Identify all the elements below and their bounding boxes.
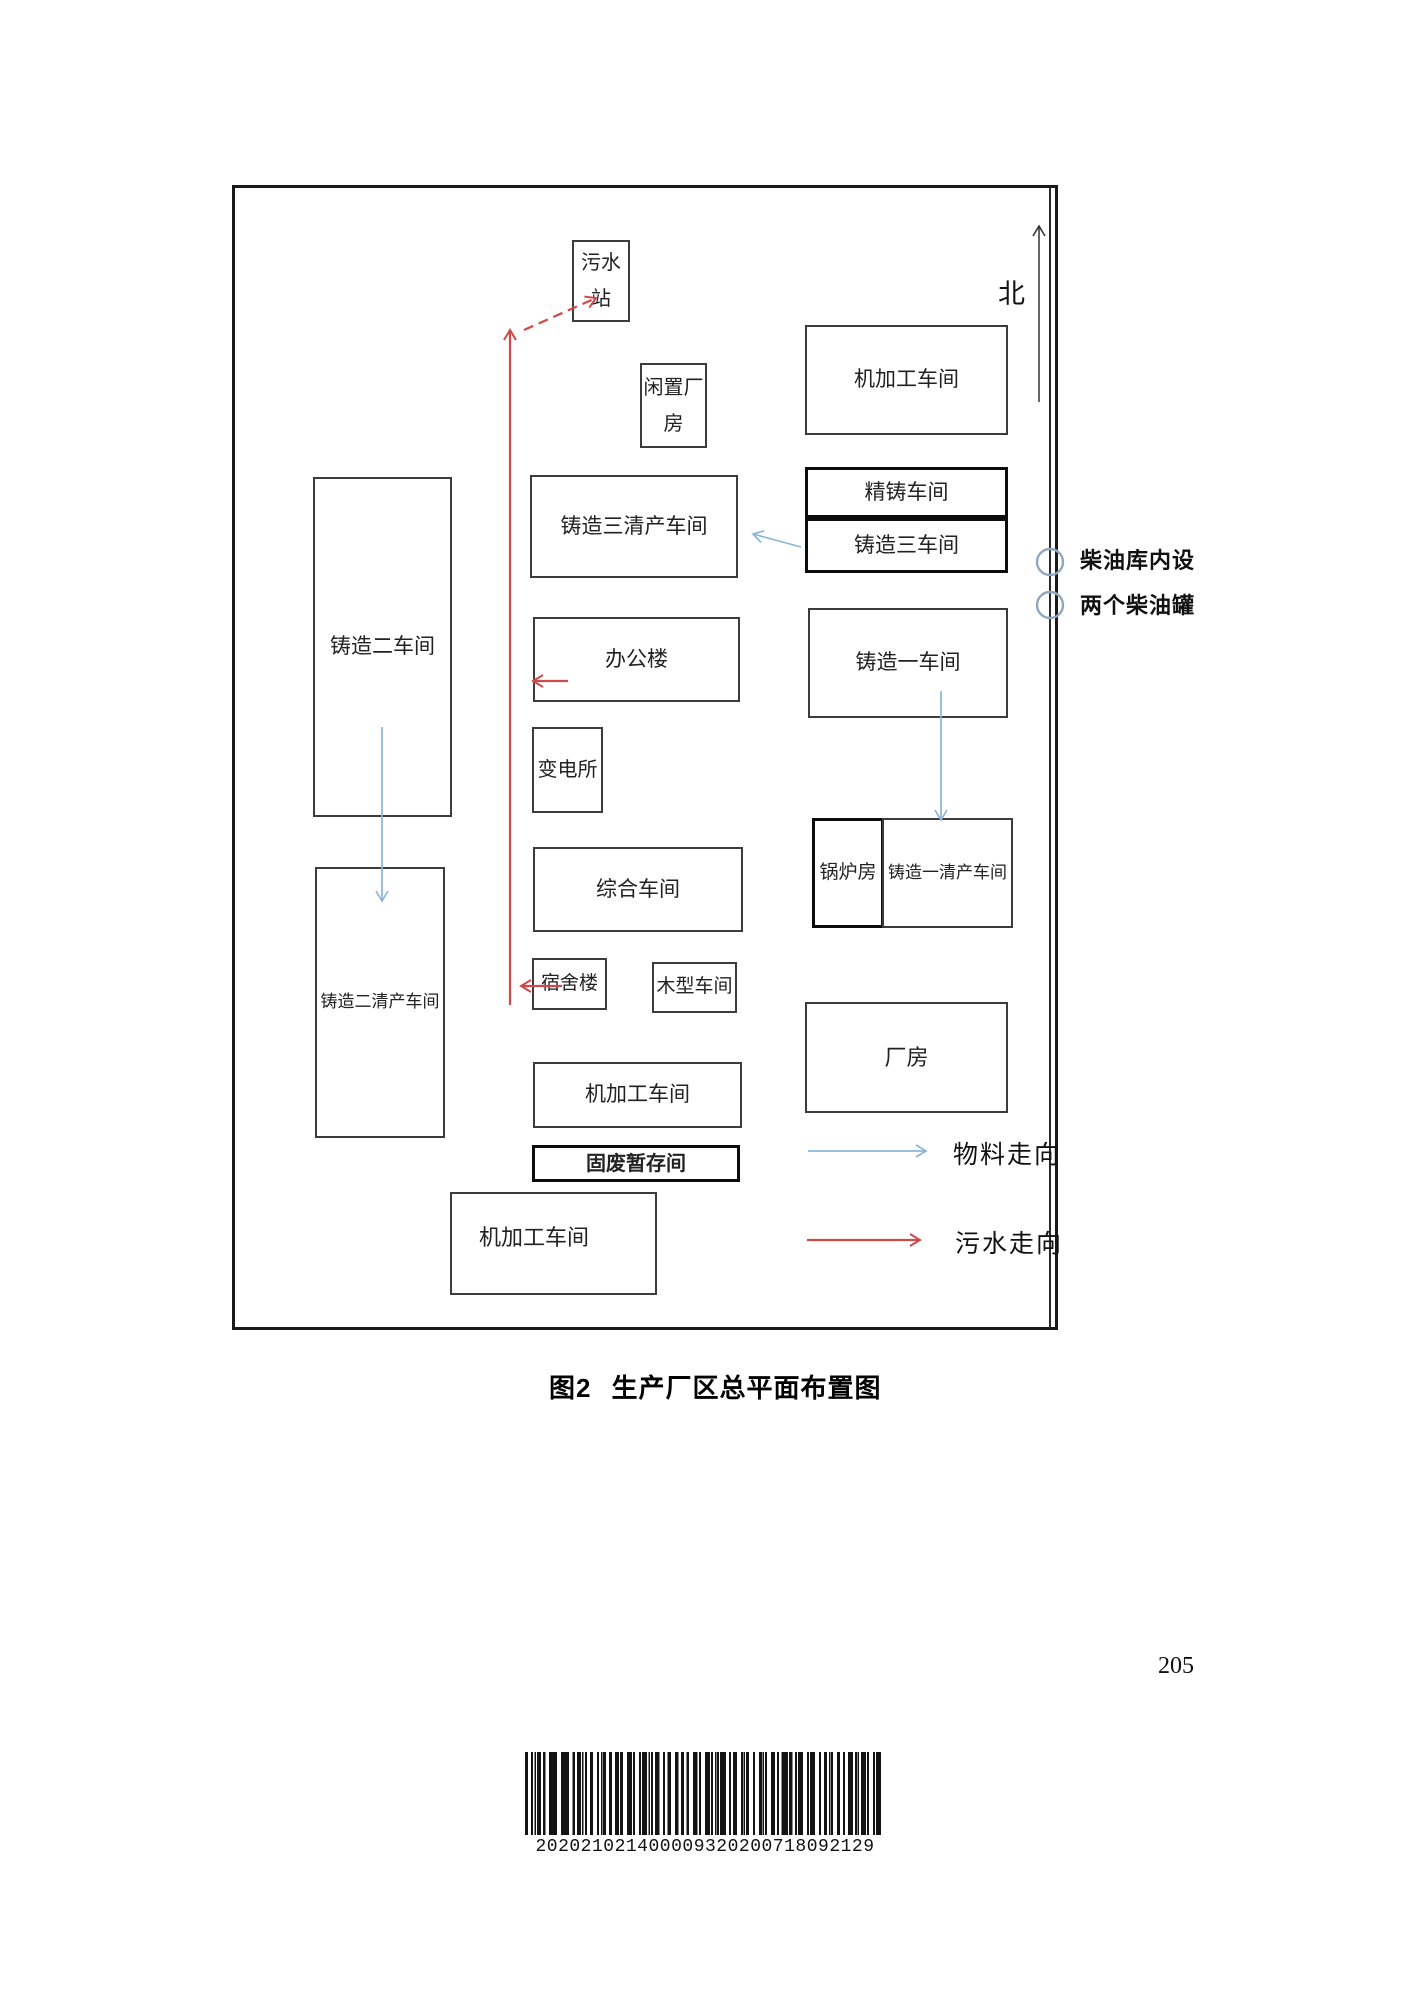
legend-sewage-flow-label: 污水走向 [955, 1224, 1063, 1260]
building-dormitory: 宿舍楼 [532, 958, 607, 1010]
building-label: 综合车间 [596, 871, 680, 909]
building-boiler-room: 锅炉房 [812, 818, 884, 928]
document-page: 污水站 闲置厂房 铸造三清产车间 办公楼 变电所 综合车间 宿舍楼 木型车间 机… [0, 0, 1411, 1995]
building-office: 办公楼 [533, 617, 740, 702]
building-label: 铸造三清产车间 [561, 508, 708, 546]
barcode-bars-icon [525, 1752, 885, 1835]
building-substation: 变电所 [532, 727, 603, 813]
building-wood-pattern: 木型车间 [652, 962, 737, 1013]
north-label: 北 [998, 272, 1025, 311]
building-label: 铸造三车间 [854, 527, 959, 565]
barcode: 202021021400009320200718092129 [525, 1752, 885, 1857]
building-label: 锅炉房 [819, 856, 876, 890]
building-label: 办公楼 [605, 641, 668, 679]
building-casting3-cleaning: 铸造三清产车间 [530, 475, 738, 578]
legend-material-flow-label: 物料走向 [953, 1135, 1061, 1171]
building-label: 精铸车间 [865, 474, 949, 512]
building-label: 铸造一车间 [856, 644, 961, 682]
building-label: 机加工车间 [854, 361, 959, 399]
building-label: 宿舍楼 [541, 967, 598, 1001]
building-solid-waste-storage: 固废暂存间 [532, 1145, 740, 1182]
figure-caption-number: 图2 [549, 1368, 591, 1405]
figure-caption-title: 生产厂区总平面布置图 [611, 1368, 881, 1405]
figure-caption: 图2 生产厂区总平面布置图 [549, 1368, 881, 1405]
building-boiler-casting1-cleaning-block: 锅炉房 铸造一清产车间 [812, 818, 1013, 928]
building-label: 厂房 [884, 1038, 928, 1078]
building-label: 木型车间 [656, 970, 732, 1004]
barcode-digits: 202021021400009320200718092129 [525, 1837, 885, 1857]
diesel-annotation-line2: 两个柴油罐 [1080, 588, 1195, 620]
building-casting2: 铸造二车间 [313, 477, 452, 817]
building-comprehensive: 综合车间 [533, 847, 743, 932]
building-casting2-cleaning: 铸造二清产车间 [315, 867, 445, 1138]
building-casting1-cleaning: 铸造一清产车间 [882, 818, 1013, 928]
building-casting3: 铸造三车间 [805, 518, 1008, 573]
building-label: 铸造二清产车间 [321, 987, 440, 1018]
building-casting1: 铸造一车间 [808, 608, 1008, 718]
building-machining-south: 机加工车间 [450, 1192, 657, 1295]
building-label: 机加工车间 [479, 1218, 589, 1258]
building-label: 变电所 [538, 752, 598, 788]
building-label: 机加工车间 [585, 1076, 690, 1114]
building-idle-plant: 闲置厂房 [640, 363, 707, 448]
building-machining-north: 机加工车间 [805, 325, 1008, 435]
building-label: 污水站 [574, 245, 628, 317]
page-number: 205 [1158, 1653, 1194, 1680]
building-sewage-station: 污水站 [572, 240, 630, 322]
building-plant-building: 厂房 [805, 1002, 1008, 1113]
building-label: 固废暂存间 [586, 1146, 686, 1182]
building-label: 闲置厂房 [642, 370, 705, 442]
building-label: 铸造一清产车间 [888, 858, 1007, 889]
diesel-annotation-line1: 柴油库内设 [1080, 543, 1195, 575]
building-label: 铸造二车间 [330, 628, 435, 666]
building-machining-middle: 机加工车间 [533, 1062, 742, 1128]
building-precision-casting: 精铸车间 [805, 467, 1008, 518]
